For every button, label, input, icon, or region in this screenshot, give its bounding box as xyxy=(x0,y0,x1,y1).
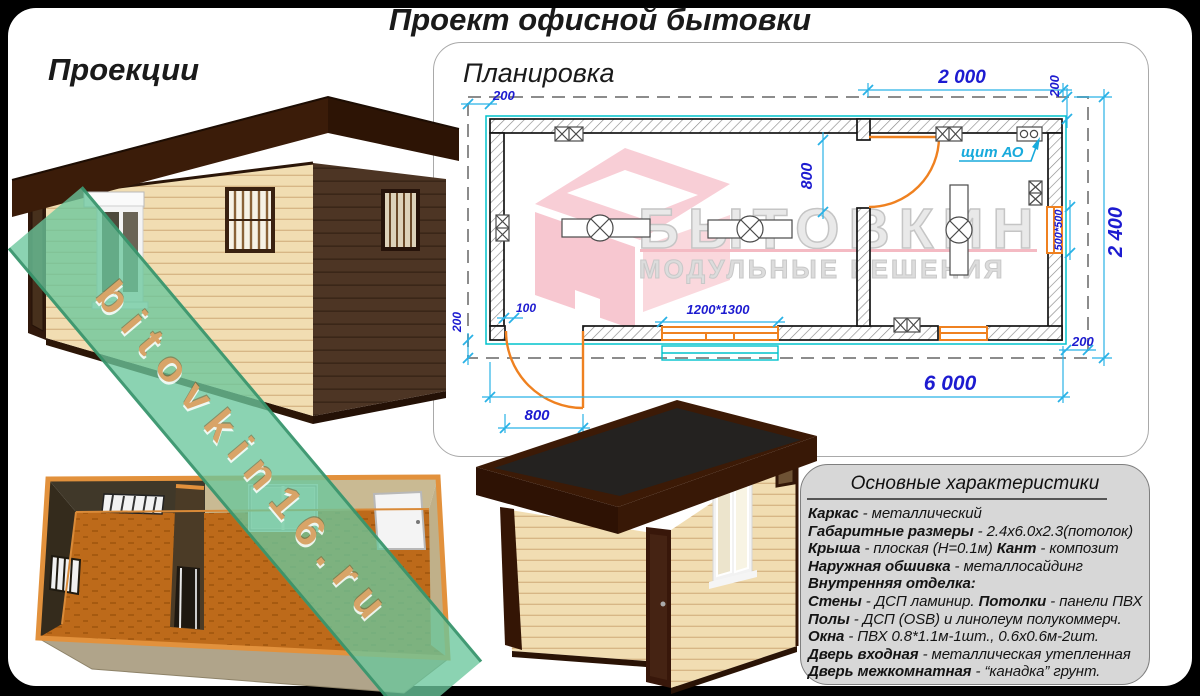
projections-heading: Проекции xyxy=(48,52,199,88)
brand-tagline-watermark: МОДУЛЬНЫЕ РЕШЕНИЯ xyxy=(639,254,1006,285)
page-title: Проект офисной бытовки xyxy=(0,2,1200,38)
spec-row: Крыша - плоская (Н=0.1м) Кант - композит xyxy=(808,540,1149,558)
spec-row: Габаритные размеры - 2.4х6.0х2.3(потолок… xyxy=(808,523,1149,541)
spec-row: Стены - ДСП ламинир. Потолки - панели ПВ… xyxy=(808,593,1149,611)
spec-row: Каркас - металлический xyxy=(808,505,1149,523)
spec-row: Полы - ДСП (OSB) и линолеум полукоммерч. xyxy=(808,611,1149,629)
specs-divider xyxy=(807,498,1107,500)
brand-underline xyxy=(640,249,1037,252)
specs-list: Каркас - металлическийГабаритные размеры… xyxy=(801,504,1149,681)
specs-heading: Основные характеристики xyxy=(801,473,1149,495)
spec-row: Дверь межкомнатная - “канадка” грунт. xyxy=(808,663,1149,681)
spec-row: Дверь входная - металлическая утепленная xyxy=(808,646,1149,664)
spec-row: Внутренняя отделка: xyxy=(808,575,1149,593)
brand-name-watermark: БЫТОВКИН xyxy=(638,196,1043,262)
spec-row: Окна - ПВХ 0.8*1.1м-1шт., 0.6х0.6м-2шт. xyxy=(808,628,1149,646)
spec-row: Наружная обшивка - металлосайдинг xyxy=(808,558,1149,576)
specs-panel: Основные характеристики Каркас - металли… xyxy=(800,464,1150,685)
sheet: Проект офисной бытовки Проекции Планиров… xyxy=(0,0,1200,696)
plan-heading: Планировка xyxy=(463,58,615,89)
